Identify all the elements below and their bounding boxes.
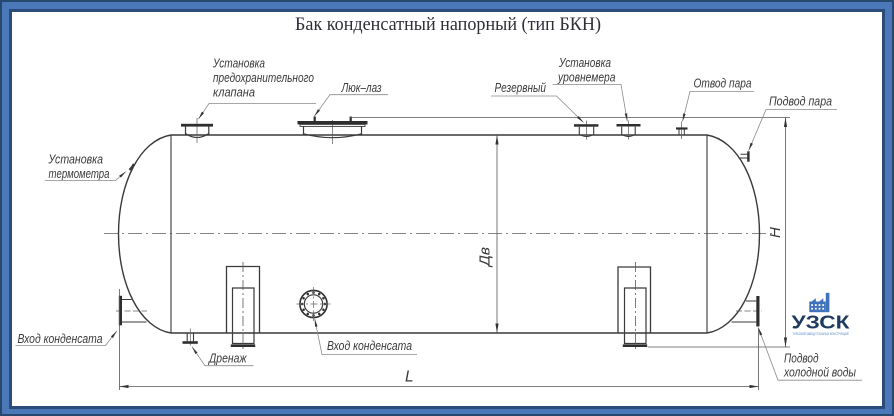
svg-text:Н: Н [767, 227, 784, 238]
svg-text:Вход конденсата: Вход конденсата [18, 331, 103, 346]
svg-text:клапана: клапана [213, 85, 255, 100]
svg-text:Резервный: Резервный [495, 80, 547, 95]
svg-text:Дв: Дв [477, 247, 494, 268]
svg-text:Установка: Установка [212, 56, 265, 71]
svg-text:уровнемера: уровнемера [557, 70, 615, 85]
svg-text:Установка: Установка [558, 55, 611, 70]
svg-text:УЗСК: УЗСК [792, 313, 851, 333]
svg-text:предохранительного: предохранительного [213, 70, 314, 85]
svg-text:L: L [405, 369, 414, 386]
svg-text:Бак конденсатный напорный (тип: Бак конденсатный напорный (тип БКН) [295, 14, 601, 35]
svg-text:Установка: Установка [48, 152, 103, 167]
svg-text:холодной воды: холодной воды [783, 365, 856, 380]
svg-text:Дренаж: Дренаж [207, 351, 247, 366]
svg-text:термометра: термометра [49, 166, 110, 181]
svg-text:Подвод: Подвод [784, 351, 819, 366]
svg-text:Вход конденсата: Вход конденсата [327, 338, 412, 353]
svg-text:Подвод пара: Подвод пара [769, 94, 832, 109]
svg-text:ТУЛЬСКИЙ ЗАВОД СТАЛЬНЫХ КОНСТР: ТУЛЬСКИЙ ЗАВОД СТАЛЬНЫХ КОНСТРУКЦИЙ [793, 332, 849, 336]
svg-text:Люк–лаз: Люк–лаз [341, 80, 382, 95]
svg-text:Отвод пара: Отвод пара [694, 76, 752, 91]
